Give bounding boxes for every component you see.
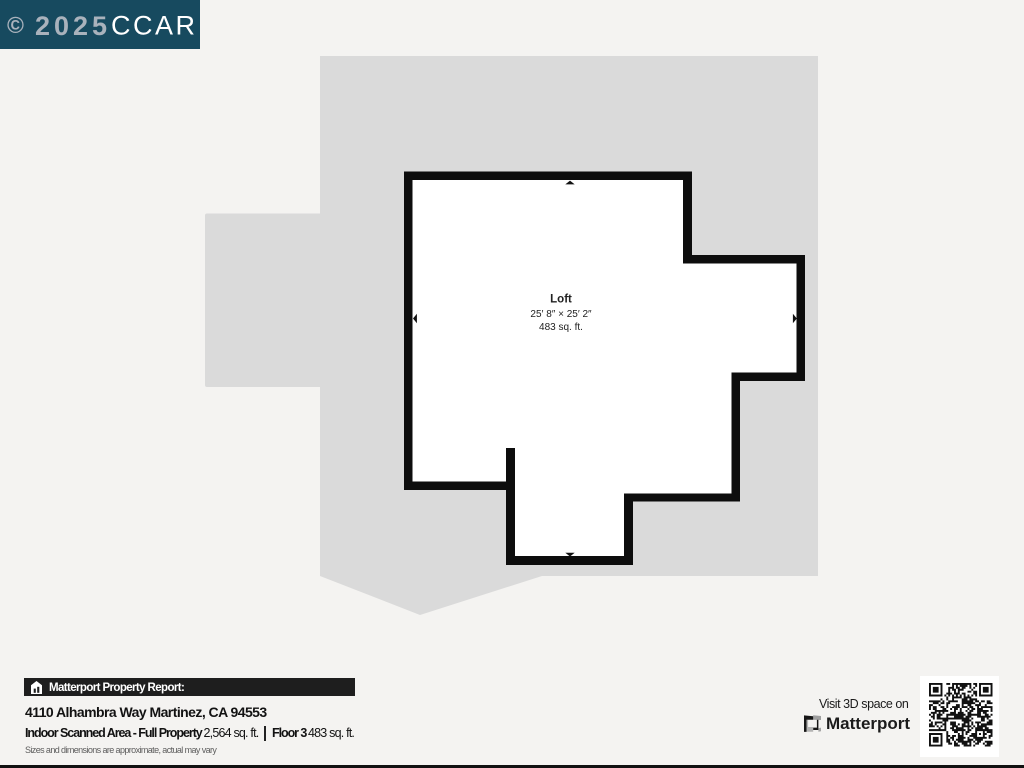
svg-text:25′ 8″ × 25′ 2″: 25′ 8″ × 25′ 2″ bbox=[530, 309, 592, 320]
svg-text:Loft: Loft bbox=[550, 294, 572, 306]
svg-text:483 sq. ft.: 483 sq. ft. bbox=[539, 322, 583, 333]
